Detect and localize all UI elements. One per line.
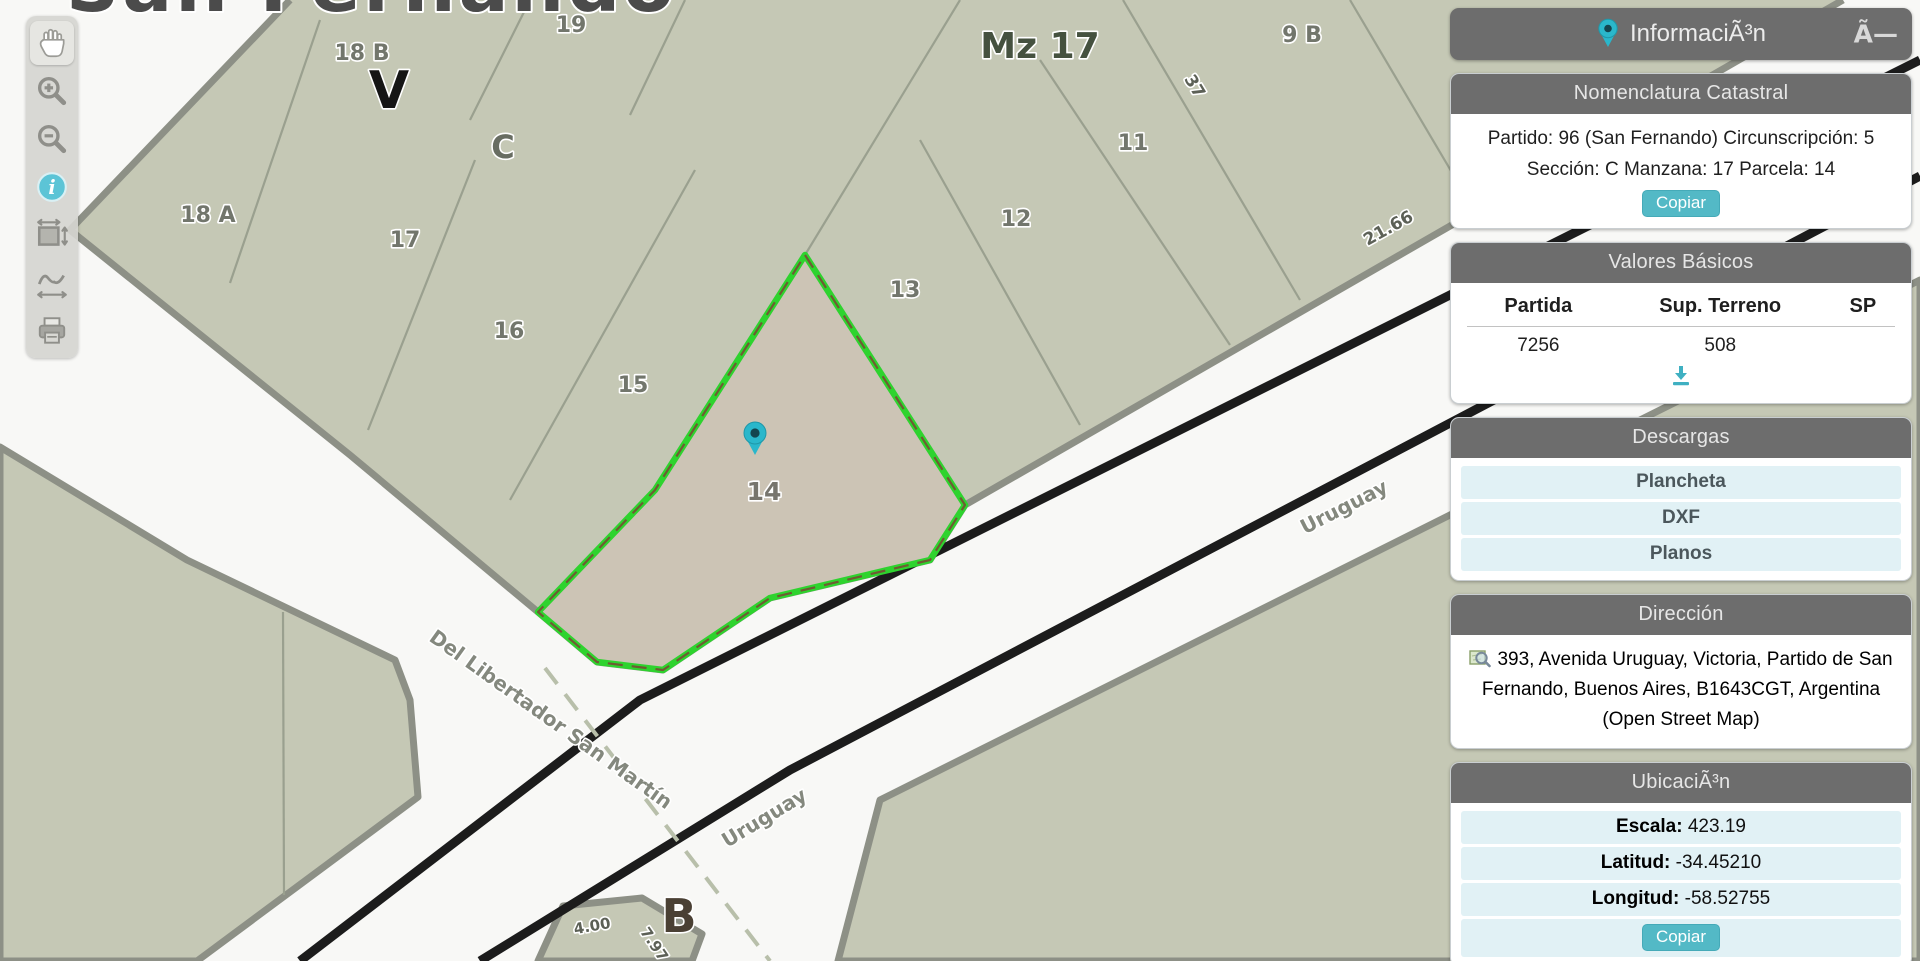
section-valores-title: Valores Básicos (1451, 243, 1911, 283)
section-nomenclatura-title: Nomenclatura Catastral (1451, 74, 1911, 114)
measure-distance-button[interactable] (30, 261, 74, 305)
info-tool-button[interactable]: i (30, 165, 74, 209)
ubicacion-row-escala: Escala: 423.19 (1461, 811, 1901, 844)
download-icon (1668, 363, 1694, 387)
direccion-text: 393, Avenida Uruguay, Victoria, Partido … (1482, 649, 1893, 730)
zoom-out-button[interactable] (30, 117, 74, 161)
ubicacion-row-latitud: Latitud: -34.45210 (1461, 847, 1901, 880)
info-icon: i (35, 170, 69, 204)
valores-cell-partida: 7256 (1467, 327, 1610, 359)
longitud-value: -58.52755 (1685, 888, 1771, 909)
valores-cell-sup-terreno: 508 (1610, 327, 1831, 359)
map-toolbar: i (26, 16, 78, 358)
map-label-parcel-15: 15 (618, 373, 649, 398)
map-label-parcel-12: 12 (1001, 207, 1032, 232)
download-dxf-link[interactable]: DXF (1461, 502, 1901, 535)
map-label-parcel-16: 16 (494, 319, 525, 344)
section-direccion-title: Dirección (1451, 595, 1911, 635)
info-panel-header: InformaciÃ³n Ã— (1450, 8, 1912, 60)
section-descargas: Descargas Plancheta DXF Planos (1450, 417, 1912, 581)
section-direccion: Dirección 393, Avenida Uruguay, Victoria… (1450, 594, 1912, 749)
map-label-parcel-13: 13 (890, 278, 921, 303)
section-valores: Valores Básicos Partida Sup. Terreno SP … (1450, 242, 1912, 404)
map-label-parcel-9b: 9 B (1282, 23, 1322, 48)
zoom-out-icon (35, 122, 69, 156)
escala-value: 423.19 (1688, 816, 1746, 837)
zoom-in-icon (35, 74, 69, 108)
map-label-parcel-17: 17 (390, 228, 421, 253)
map-label-manzana: Mz 17 (980, 26, 1099, 67)
map-label-parcel-18a: 18 A (180, 203, 235, 228)
map-label-section-b: B (661, 889, 696, 943)
close-panel-button[interactable]: Ã— (1854, 20, 1898, 49)
longitud-label: Longitud: (1592, 888, 1680, 909)
valores-col-partida: Partida (1467, 291, 1610, 327)
latitud-label: Latitud: (1601, 852, 1671, 873)
app-window: San Fernando Mz 17 19 18 B V C 18 A 17 1… (0, 0, 1920, 961)
section-nomenclatura: Nomenclatura Catastral Partido: 96 (San … (1450, 73, 1912, 229)
download-planos-link[interactable]: Planos (1461, 538, 1901, 571)
download-plancheta-link[interactable]: Plancheta (1461, 466, 1901, 499)
pan-tool-button[interactable] (30, 21, 74, 65)
pin-icon (1596, 18, 1620, 50)
nomenclatura-line-1: Partido: 96 (San Fernando) Circunscripci… (1465, 123, 1897, 154)
map-label-parcel-19: 19 (556, 13, 587, 38)
download-valores-button[interactable] (1668, 363, 1694, 390)
print-button[interactable] (30, 309, 74, 353)
map-label-section-c: C (491, 128, 514, 166)
copy-nomenclatura-button[interactable]: Copiar (1642, 190, 1720, 217)
map-label-parcel-14: 14 (747, 477, 782, 506)
escala-label: Escala: (1616, 816, 1683, 837)
measure-distance-icon (35, 266, 69, 300)
nomenclatura-line-2: Sección: C Manzana: 17 Parcela: 14 (1465, 154, 1897, 185)
section-descargas-title: Descargas (1451, 418, 1911, 458)
copy-ubicacion-button[interactable]: Copiar (1642, 924, 1720, 951)
print-icon (35, 314, 69, 348)
valores-col-sp: SP (1831, 291, 1895, 327)
valores-cell-sp (1831, 327, 1895, 359)
map-label-section-v: V (369, 61, 409, 121)
measure-area-icon (35, 218, 69, 252)
hand-icon (35, 26, 69, 60)
svg-text:i: i (48, 176, 55, 199)
latitud-value: -34.45210 (1676, 852, 1762, 873)
osm-map-icon (1469, 647, 1491, 669)
ubicacion-row-copy: Copiar (1461, 919, 1901, 957)
ubicacion-row-longitud: Longitud: -58.52755 (1461, 883, 1901, 916)
valores-col-sup-terreno: Sup. Terreno (1610, 291, 1831, 327)
panel-title: InformaciÃ³n (1630, 20, 1766, 48)
map-label-parcel-11: 11 (1118, 131, 1149, 156)
info-panel: InformaciÃ³n Ã— Nomenclatura Catastral P… (1450, 8, 1912, 961)
section-ubicacion: UbicaciÃ³n Escala: 423.19 Latitud: -34.4… (1450, 762, 1912, 961)
zoom-in-button[interactable] (30, 69, 74, 113)
measure-area-button[interactable] (30, 213, 74, 257)
section-ubicacion-title: UbicaciÃ³n (1451, 763, 1911, 803)
